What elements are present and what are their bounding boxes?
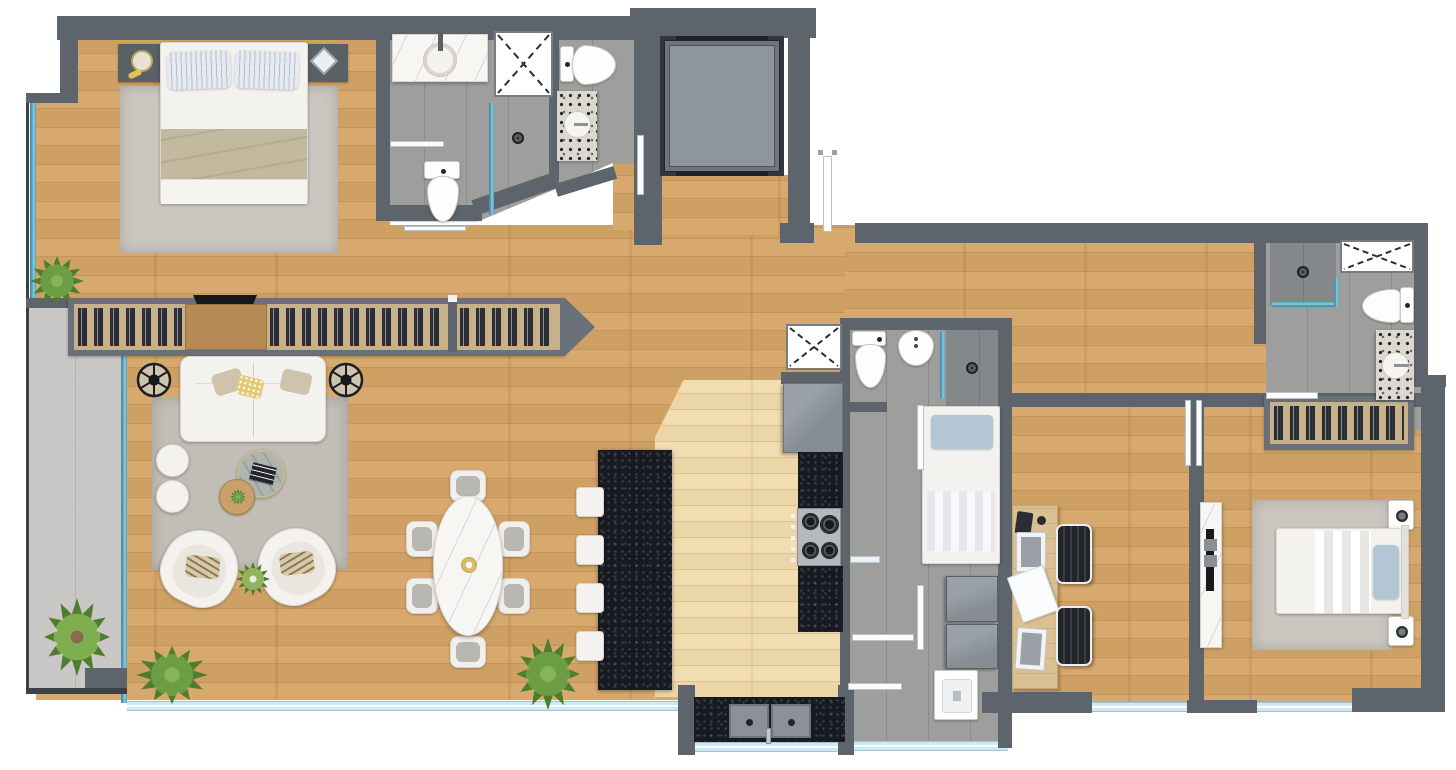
bath1-drain [512, 132, 524, 144]
sink-drain-right [788, 719, 795, 726]
single-bed-pillow [931, 415, 993, 449]
service-door-bar [850, 556, 880, 563]
bath1-faucet [438, 31, 443, 51]
pouf-1 [156, 444, 189, 477]
floor-plan [0, 0, 1456, 770]
pillow-right [234, 50, 299, 90]
bath3-glass-horizontal [1272, 302, 1338, 307]
wc-bidet-dots [914, 337, 918, 341]
burner-2 [821, 516, 838, 533]
single-bed-rail-1 [917, 405, 924, 470]
wardrobe-hangers-3 [460, 308, 556, 346]
wall-bedroom2-corner [1352, 688, 1436, 712]
entry-door-hinge-1 [818, 150, 823, 155]
skylight-panel-kitchen [786, 324, 842, 370]
entry-door-leaf [823, 156, 832, 232]
wardrobe-hangers-2 [270, 308, 446, 346]
wc-shower-glass [940, 332, 945, 398]
wall-bedroom2-bottom-post [1187, 700, 1257, 713]
entry-door-hinge-2 [832, 150, 837, 155]
bath1-towel-bar-2 [404, 226, 466, 231]
wc-toilet-button [877, 337, 882, 342]
bath1-shower-tray [494, 31, 553, 97]
outside-patch-bedroom-corner [36, 40, 62, 95]
bath2-faucet [574, 123, 588, 126]
wall-office-bottom [982, 692, 1092, 713]
dining-chair-right-1 [498, 521, 530, 557]
window-laundry-bottom [854, 741, 1008, 751]
bedroom2-pillow [1373, 545, 1399, 599]
wall-wc-stub [845, 402, 887, 412]
bedroom2-wardrobe-hangers [1274, 406, 1404, 440]
elevator-door-track-bottom [676, 172, 768, 176]
office-chair-1 [1056, 524, 1092, 584]
sink-drain-left [746, 719, 753, 726]
window-glass-bedroom-left [30, 100, 36, 307]
sofa-seat-line [253, 363, 254, 437]
table-candle [461, 557, 477, 573]
nightstand-2a-lamp [1396, 510, 1408, 522]
floor-lamp-right [328, 362, 364, 398]
laundry-door-bar [848, 683, 902, 690]
wall-right-upper [1414, 223, 1428, 385]
bath1-toilet-button [441, 169, 446, 174]
dryer [946, 624, 998, 669]
diamond-decor [310, 47, 338, 75]
wardrobe-divider [448, 302, 457, 352]
pillow-left [166, 50, 231, 90]
floor-lamp-left [136, 362, 172, 398]
stove-knobs [791, 512, 795, 562]
wardrobe-hangers-1 [78, 308, 182, 346]
wall-office-service [998, 318, 1012, 748]
office-chair-2 [1056, 606, 1092, 666]
skylight-panel-bath3 [1340, 240, 1414, 273]
wall-bath3-hall-divider [1254, 240, 1266, 344]
wall-office-top [1012, 393, 1192, 407]
wall-right-lower [1421, 380, 1445, 712]
dresser-tv [193, 295, 257, 304]
sofa-pillow-yellow [235, 374, 265, 400]
bar-stool-2 [576, 535, 604, 565]
wardrobe-divider-cap [448, 295, 457, 302]
laundry-sink [934, 670, 978, 720]
kitchen-faucet [766, 728, 771, 744]
bath1-shower-glass [489, 103, 494, 215]
dining-chair-right-2 [498, 578, 530, 614]
single-bed-blanket [927, 491, 995, 551]
wall-bedroom-step [26, 93, 78, 103]
wall-balcony-bottom-line [26, 688, 127, 694]
dining-chair-bottom [450, 636, 486, 668]
desk-lamp [1037, 516, 1046, 525]
gold-item [127, 68, 142, 79]
pouf-2 [156, 480, 189, 513]
elevator-frame [664, 40, 780, 172]
bedroom2-headboard [1401, 525, 1409, 619]
sofa-pillow-beige-2 [279, 368, 313, 396]
window-bedroom2-bottom [1255, 702, 1352, 712]
bed-sheet-foot [161, 179, 307, 204]
wc-shower-drain [966, 362, 978, 374]
window-glass-living-left [121, 305, 127, 703]
sliding-door-leaf-1 [1185, 400, 1191, 466]
nightstand-left [118, 44, 166, 82]
single-bed-rail-2 [917, 585, 924, 650]
bath1-towel-bar [390, 141, 444, 147]
elevator-door-track-top [676, 36, 768, 40]
kitchen-sink-counter [694, 697, 845, 742]
wall-bedroom-bath-divider [376, 22, 390, 218]
burner-1 [803, 514, 818, 529]
bath3-counter [1376, 330, 1414, 400]
bar-stool-1 [576, 487, 604, 517]
stove [797, 508, 841, 566]
bath2-toilet-button [565, 62, 570, 67]
coffee-table-books [249, 462, 276, 484]
kitchen-counter-lower [798, 566, 843, 632]
kitchen-sink-right [771, 704, 811, 738]
clock-decor [131, 50, 153, 72]
side-table [219, 479, 255, 515]
window-living-bottom [127, 701, 678, 711]
bed-blanket [161, 129, 307, 181]
desk-laptop-2 [1015, 627, 1048, 671]
floor-hall-patch-elevator [660, 175, 788, 235]
wall-bedroom-left [60, 22, 78, 100]
laundry-sink-faucet [953, 691, 961, 701]
sliding-door-leaf-2 [1196, 400, 1202, 466]
console-box-2 [1204, 555, 1217, 567]
laptop-1-screen [1021, 537, 1041, 567]
bar-stool-3 [576, 583, 604, 613]
single-bed [922, 406, 1000, 564]
dining-table [433, 496, 503, 636]
bath2-door-leaf [637, 135, 644, 195]
armchair-left-pillow [185, 554, 221, 579]
wall-entry-left-seg [780, 223, 814, 243]
balcony-parapet-line [26, 100, 29, 692]
fridge [783, 383, 843, 453]
bedroom2-bed [1276, 528, 1408, 614]
bath1-vanity [392, 34, 488, 82]
kitchen-island [598, 450, 672, 690]
bath3-toilet-tank [1400, 287, 1414, 323]
armchair-right-pillow [279, 551, 315, 576]
window-office-bottom [1090, 702, 1187, 712]
tv-console [1200, 502, 1222, 648]
washer [946, 576, 998, 622]
master-bed [160, 42, 308, 204]
wall-balcony-top-piece [26, 298, 72, 308]
kitchen-counter-upper [798, 452, 843, 508]
wall-elevator-right-post [788, 8, 810, 243]
laptop-2-screen [1020, 632, 1042, 665]
kitchen-sink-left [729, 704, 769, 738]
burner-4 [822, 543, 837, 558]
bath3-glass-vertical [1334, 278, 1339, 307]
burner-3 [803, 543, 818, 558]
side-table-plant [230, 489, 246, 505]
sofa [180, 356, 326, 442]
wall-elevator-left-post [634, 10, 662, 245]
elevator-shaft [660, 36, 784, 176]
bath2-counter [557, 91, 597, 161]
nightstand-2b-lamp [1396, 626, 1408, 638]
console-box-1 [1204, 539, 1217, 551]
wall-service-top [840, 318, 1010, 330]
wall-corridor-top [855, 223, 1280, 243]
bath3-door-bar [1266, 392, 1318, 399]
wardrobe-dresser [185, 304, 267, 350]
bedroom2-blanket [1315, 531, 1371, 613]
bath3-drain [1297, 266, 1309, 278]
bar-stool-4 [576, 631, 604, 661]
wall-top-main [57, 16, 657, 40]
nightstand-2b [1388, 616, 1414, 646]
elevator-cab [669, 45, 775, 167]
wall-kitchen-post-left [678, 685, 695, 755]
bath3-toilet-button [1405, 303, 1410, 308]
bath3-faucet [1394, 364, 1409, 367]
laundry-door-bar-upper [852, 634, 914, 641]
